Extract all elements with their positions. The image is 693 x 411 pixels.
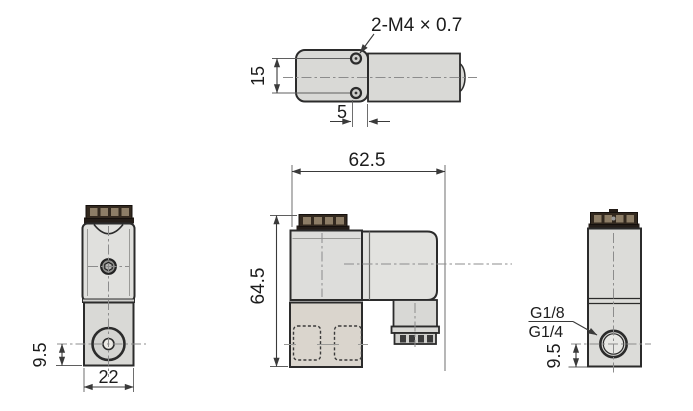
mounting-hole-top <box>351 54 361 64</box>
thread-size-g14-label: G1/4 <box>529 324 564 341</box>
thread-callout: 2-M4 × 0.7 <box>360 15 462 53</box>
front-view: 9.5 22 <box>30 206 146 393</box>
dim-5: 5 <box>330 100 390 127</box>
thread-size-g18-label: G1/8 <box>530 305 565 322</box>
technical-drawing-canvas: 15 5 2-M4 × 0.7 <box>0 0 693 411</box>
din-connector <box>362 232 437 301</box>
thread-size-callout: G1/8 G1/4 <box>529 305 598 341</box>
drawing-page: 15 5 2-M4 × 0.7 <box>0 0 693 411</box>
dim-62-5-label: 62.5 <box>349 150 386 171</box>
solenoid-coil <box>291 231 363 301</box>
back-view: G1/8 G1/4 9.5 <box>529 209 652 375</box>
dim-64-5-label: 64.5 <box>248 268 269 305</box>
dim-9-5-back-label: 9.5 <box>544 343 564 368</box>
mounting-hole-bottom <box>351 88 361 98</box>
valve-body <box>290 303 362 368</box>
connector-cap <box>84 206 134 224</box>
dim-9-5-back: 9.5 <box>544 343 587 368</box>
dim-22: 22 <box>84 367 134 392</box>
connector-cap <box>297 215 350 232</box>
connector-cap <box>589 209 640 229</box>
top-view: 15 5 2-M4 × 0.7 <box>248 15 477 127</box>
dim-9-5-front: 9.5 <box>30 342 82 367</box>
dim-15-label: 15 <box>248 66 268 86</box>
dim-5-label: 5 <box>337 102 347 122</box>
dim-9-5-front-label: 9.5 <box>30 342 50 367</box>
dim-22-label: 22 <box>98 367 118 387</box>
dim-15: 15 <box>248 59 277 94</box>
side-view: 62.5 <box>248 150 512 371</box>
thread-callout-label: 2-M4 × 0.7 <box>371 15 462 36</box>
